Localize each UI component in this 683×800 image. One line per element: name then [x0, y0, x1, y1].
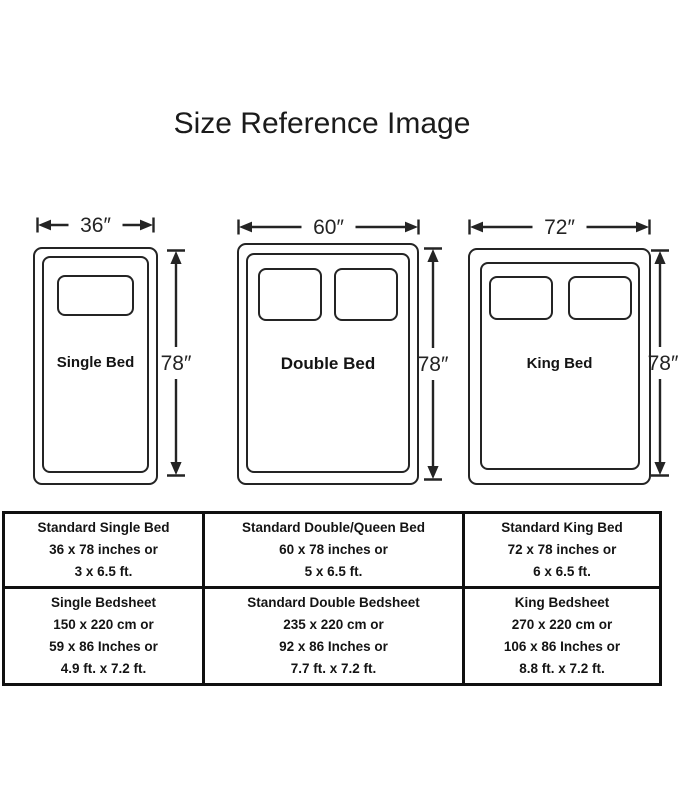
cell-line: 59 x 86 Inches or: [9, 636, 198, 658]
pillow-icon: [57, 275, 134, 316]
table-row-standard-beds: Standard Single Bed 36 x 78 inches or 3 …: [4, 513, 661, 588]
cell-line: 8.8 ft. x 7.2 ft.: [469, 658, 655, 680]
king-bed-name-label: King Bed: [470, 355, 649, 372]
king-bed-diagram: King Bed: [468, 248, 651, 485]
size-reference-figure: Size Reference Image 36″ Single Bed 78″: [0, 0, 683, 800]
cell-line: 5 x 6.5 ft.: [209, 561, 458, 583]
cell-line: 4.9 ft. x 7.2 ft.: [9, 658, 198, 680]
cell-line: 235 x 220 cm or: [209, 614, 458, 636]
cell-line: 92 x 86 Inches or: [209, 636, 458, 658]
table-row-bedsheets: Single Bedsheet 150 x 220 cm or 59 x 86 …: [4, 588, 661, 685]
size-table: Standard Single Bed 36 x 78 inches or 3 …: [2, 511, 662, 686]
cell-line: 106 x 86 Inches or: [469, 636, 655, 658]
single-bed-diagram: Single Bed: [33, 247, 158, 485]
king-bed-height-label: 78″: [648, 352, 679, 375]
cell-line: King Bedsheet: [469, 592, 655, 614]
pillow-icon: [489, 276, 553, 320]
page-title: Size Reference Image: [0, 107, 644, 141]
pillow-icon: [258, 268, 322, 321]
double-bed-height-arrow-icon: 78″: [410, 247, 456, 481]
cell-line: 6 x 6.5 ft.: [469, 561, 655, 583]
king-bed-pillow-row: [482, 276, 638, 320]
double-bed-diagram: Double Bed: [237, 243, 419, 485]
single-bed-width-arrow-icon: 36″: [36, 214, 155, 236]
cell-line: Standard Single Bed: [9, 517, 198, 539]
table-cell-king-bedsheet: King Bedsheet 270 x 220 cm or 106 x 86 I…: [464, 588, 661, 685]
cell-line: 36 x 78 inches or: [9, 539, 198, 561]
single-bed-width-label: 36″: [80, 214, 111, 237]
single-bed-height-label: 78″: [161, 352, 192, 375]
cell-line: Standard Double Bedsheet: [209, 592, 458, 614]
double-bed-pillow-row: [248, 268, 408, 321]
king-bed-height-arrow-icon: 78″: [637, 249, 683, 477]
double-bed-height-label: 78″: [418, 353, 449, 376]
cell-line: 150 x 220 cm or: [9, 614, 198, 636]
table-cell-standard-king: Standard King Bed 72 x 78 inches or 6 x …: [464, 513, 661, 588]
double-bed-name-label: Double Bed: [239, 354, 417, 374]
king-bed-width-label: 72″: [544, 216, 575, 239]
pillow-icon: [568, 276, 632, 320]
cell-line: 7.7 ft. x 7.2 ft.: [209, 658, 458, 680]
table-cell-double-bedsheet: Standard Double Bedsheet 235 x 220 cm or…: [204, 588, 464, 685]
double-bed-width-arrow-icon: 60″: [237, 216, 420, 238]
cell-line: 3 x 6.5 ft.: [9, 561, 198, 583]
cell-line: Standard King Bed: [469, 517, 655, 539]
cell-line: 60 x 78 inches or: [209, 539, 458, 561]
pillow-icon: [334, 268, 398, 321]
king-bed-width-arrow-icon: 72″: [468, 216, 651, 238]
single-bed-name-label: Single Bed: [35, 354, 156, 371]
table-cell-standard-double: Standard Double/Queen Bed 60 x 78 inches…: [204, 513, 464, 588]
double-bed-width-label: 60″: [313, 216, 344, 239]
table-cell-standard-single: Standard Single Bed 36 x 78 inches or 3 …: [4, 513, 204, 588]
cell-line: Standard Double/Queen Bed: [209, 517, 458, 539]
table-cell-single-bedsheet: Single Bedsheet 150 x 220 cm or 59 x 86 …: [4, 588, 204, 685]
single-bed-height-arrow-icon: 78″: [153, 249, 199, 477]
cell-line: 72 x 78 inches or: [469, 539, 655, 561]
cell-line: Single Bedsheet: [9, 592, 198, 614]
single-bed-pillow-row: [44, 275, 147, 316]
cell-line: 270 x 220 cm or: [469, 614, 655, 636]
